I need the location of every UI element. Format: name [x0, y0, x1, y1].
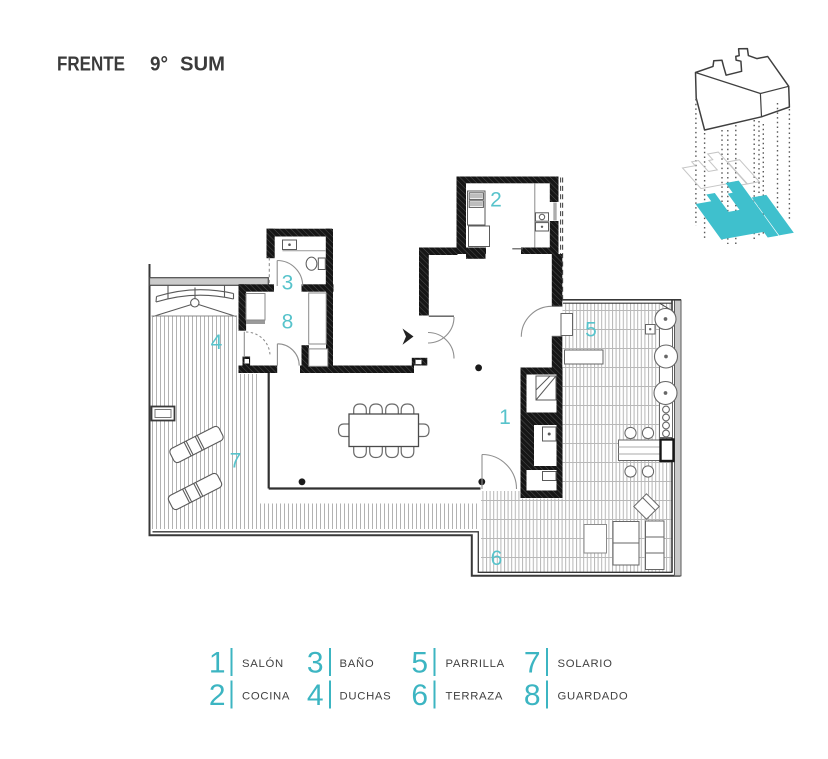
svg-text:3: 3: [282, 272, 294, 295]
svg-text:SALÓN: SALÓN: [242, 657, 284, 670]
svg-text:DUCHAS: DUCHAS: [340, 691, 392, 703]
svg-text:2: 2: [209, 679, 226, 712]
svg-text:9°: 9°: [150, 54, 168, 76]
svg-text:BAÑO: BAÑO: [340, 657, 375, 670]
svg-text:SOLARIO: SOLARIO: [558, 658, 613, 670]
svg-text:8: 8: [524, 679, 541, 712]
svg-text:4: 4: [211, 331, 223, 354]
svg-text:8: 8: [282, 311, 294, 334]
svg-text:FRENTE: FRENTE: [57, 54, 125, 76]
svg-text:COCINA: COCINA: [242, 691, 290, 703]
svg-text:PARRILLA: PARRILLA: [446, 658, 505, 670]
svg-text:5: 5: [411, 647, 428, 680]
svg-text:3: 3: [307, 647, 324, 680]
svg-text:6: 6: [491, 547, 503, 570]
svg-text:7: 7: [524, 647, 541, 680]
svg-text:4: 4: [307, 679, 324, 712]
svg-text:1: 1: [499, 406, 511, 429]
svg-text:2: 2: [490, 189, 502, 212]
svg-text:1: 1: [209, 647, 226, 680]
svg-text:6: 6: [411, 679, 428, 712]
svg-text:7: 7: [230, 450, 242, 473]
svg-text:5: 5: [585, 319, 597, 342]
svg-text:TERRAZA: TERRAZA: [446, 691, 504, 703]
svg-text:GUARDADO: GUARDADO: [558, 691, 629, 703]
svg-text:SUM: SUM: [180, 54, 225, 76]
